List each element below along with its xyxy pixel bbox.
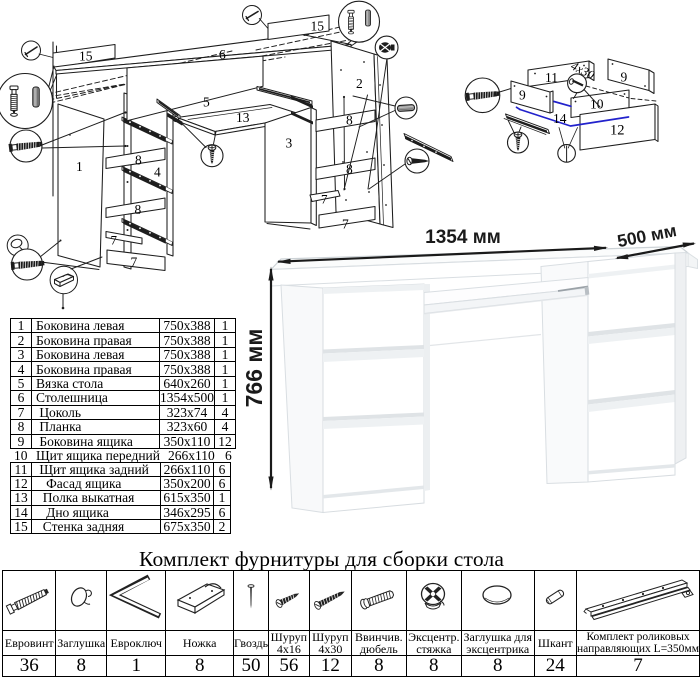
svg-text:11: 11 <box>545 70 558 85</box>
svg-text:7: 7 <box>131 255 138 270</box>
svg-text:12: 12 <box>610 123 625 139</box>
svg-text:2: 2 <box>356 76 363 91</box>
svg-text:8: 8 <box>135 153 142 168</box>
svg-text:4: 4 <box>154 165 161 180</box>
svg-text:9: 9 <box>621 70 628 85</box>
svg-text:8: 8 <box>346 113 353 128</box>
svg-text:766 мм: 766 мм <box>241 329 267 408</box>
svg-text:15: 15 <box>79 49 93 64</box>
svg-text:1354 мм: 1354 мм <box>425 227 501 248</box>
svg-text:7: 7 <box>321 192 328 207</box>
svg-text:8: 8 <box>135 202 142 217</box>
svg-text:7: 7 <box>342 217 349 232</box>
svg-text:1: 1 <box>76 159 83 174</box>
svg-text:5: 5 <box>203 95 210 110</box>
svg-text:7: 7 <box>111 233 118 248</box>
svg-text:9: 9 <box>519 88 526 103</box>
svg-text:14: 14 <box>553 111 567 126</box>
svg-text:15: 15 <box>311 19 325 34</box>
svg-text:13: 13 <box>236 110 250 125</box>
svg-text:3: 3 <box>286 136 293 151</box>
